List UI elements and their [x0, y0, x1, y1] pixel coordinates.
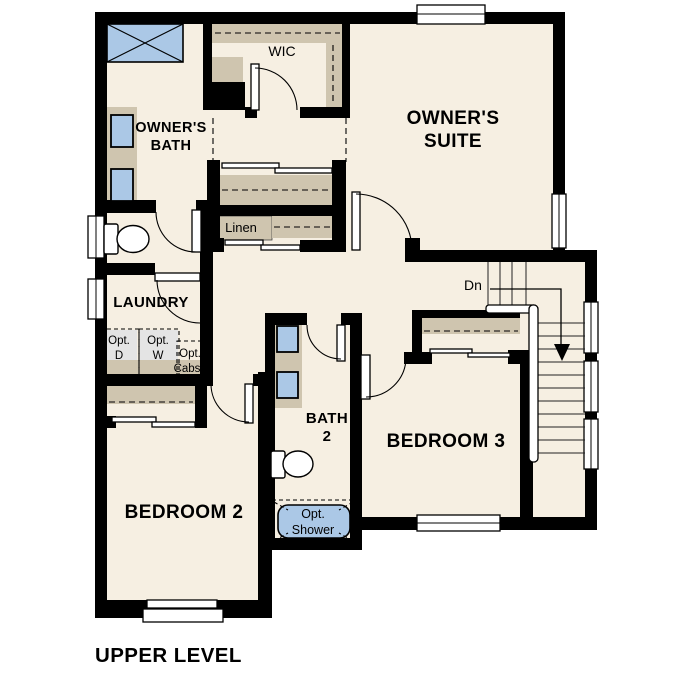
owners-bath-label-1: OWNER'S: [135, 120, 207, 136]
bedroom2-bay-window: [143, 600, 223, 622]
linen-label: Linen: [225, 220, 257, 235]
bath2-label-2: 2: [323, 428, 332, 445]
floor-plan-svg: WIC OWNER'S BATH OWNER'S SUITE Linen LAU…: [0, 0, 687, 687]
opt-shower-label-2: Shower: [292, 523, 334, 537]
wc-toilet: [104, 224, 149, 254]
opt-washer-label-1: Opt.: [147, 335, 169, 347]
owners-suite-top-window: [417, 5, 485, 24]
opt-dryer-label-2: D: [115, 350, 123, 362]
owners-suite-label-1: OWNER'S: [407, 108, 500, 129]
stairwell-window-1: [584, 302, 598, 353]
bedroom3-label: BEDROOM 3: [387, 431, 506, 452]
opt-cabs-label-1: Opt.: [179, 348, 201, 360]
wic-label: WIC: [268, 43, 295, 59]
stairwell-window-2: [584, 361, 598, 412]
stairs-down-label: Dn: [464, 277, 482, 293]
plan-title: UPPER LEVEL: [95, 644, 242, 667]
opt-shower-label-1: Opt.: [301, 507, 325, 521]
wc-window: [88, 216, 104, 258]
laundry-window: [88, 279, 104, 319]
owners-bath-label-2: BATH: [151, 138, 192, 154]
opt-washer-label-2: W: [153, 350, 164, 362]
owners-shower: [107, 24, 183, 62]
bath2-label-1: BATH: [306, 410, 348, 427]
floor-plan-page: WIC OWNER'S BATH OWNER'S SUITE Linen LAU…: [0, 0, 687, 687]
bedroom2-label: BEDROOM 2: [125, 502, 244, 523]
bath2-toilet: [271, 451, 313, 478]
opt-dryer-label-1: Opt.: [108, 335, 130, 347]
opt-cabs-label-2: Cabs: [174, 363, 201, 375]
laundry-label: LAUNDRY: [113, 294, 189, 311]
owners-suite-label-2: SUITE: [424, 131, 482, 152]
stairwell-window-3: [584, 419, 598, 469]
owners-suite-right-window: [552, 194, 566, 248]
bedroom3-window: [417, 515, 500, 531]
